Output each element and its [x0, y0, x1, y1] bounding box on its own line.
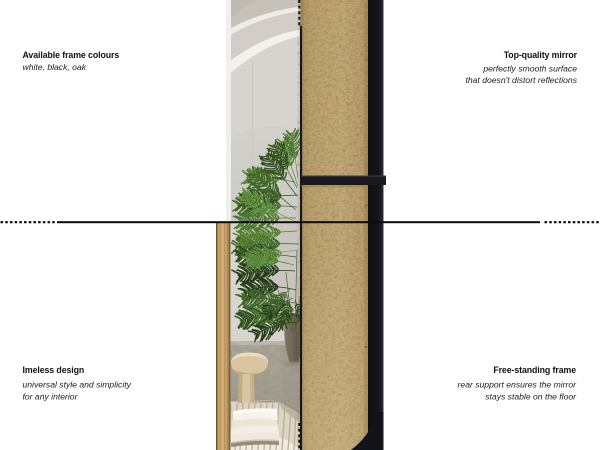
svg-text:Free-standing frame: Free-standing frame — [493, 365, 576, 375]
svg-text:rear support ensures the mirro: rear support ensures the mirror — [458, 380, 578, 390]
svg-text:perfectly smooth surface: perfectly smooth surface — [482, 64, 577, 74]
svg-text:Imeless design: Imeless design — [23, 365, 85, 375]
svg-text:stays stable on the floor: stays stable on the floor — [485, 392, 577, 402]
svg-text:universal style and simplicity: universal style and simplicity — [23, 380, 132, 390]
svg-text:that doesn't distort reflectio: that doesn't distort reflections — [465, 75, 577, 85]
svg-text:for any interior: for any interior — [23, 392, 79, 402]
svg-text:Available frame colours: Available frame colours — [23, 50, 120, 60]
svg-text:Top-quality mirror: Top-quality mirror — [504, 50, 578, 60]
svg-text:white, black, oak: white, black, oak — [23, 62, 87, 72]
